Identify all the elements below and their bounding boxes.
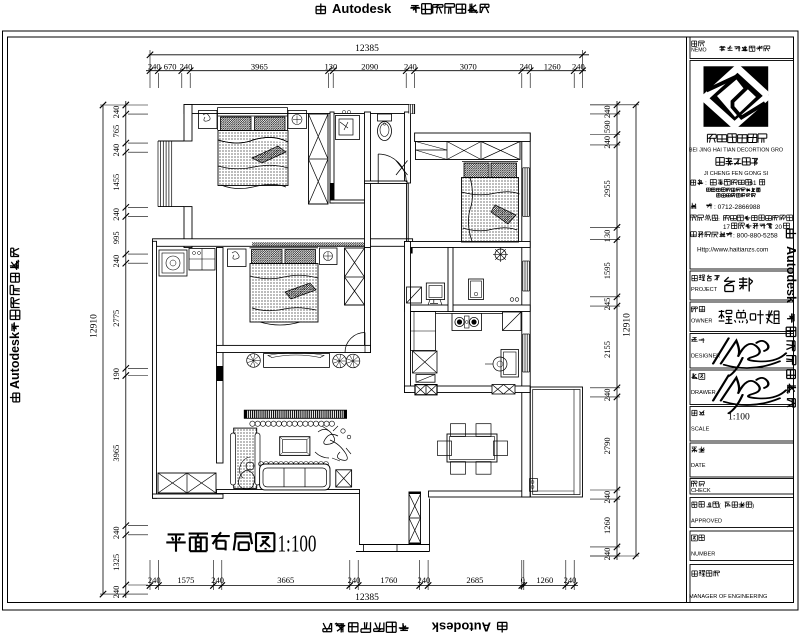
svg-text:OWNER: OWNER <box>691 319 712 325</box>
svg-text:NEMO: NEMO <box>691 48 707 54</box>
svg-text:Http://www.haitianzs.com: Http://www.haitianzs.com <box>697 247 768 254</box>
svg-text:3965: 3965 <box>111 445 121 462</box>
svg-text:(: ( <box>719 503 721 510</box>
svg-text:240: 240 <box>111 106 121 119</box>
svg-text:3965: 3965 <box>251 61 268 71</box>
svg-text:JI CHENG FEN GONG SI: JI CHENG FEN GONG SI <box>704 171 769 177</box>
svg-text:130: 130 <box>602 230 612 243</box>
svg-text:NUMBER: NUMBER <box>691 552 715 558</box>
svg-text:2790: 2790 <box>602 437 612 454</box>
svg-text:1455: 1455 <box>111 174 121 191</box>
svg-text:12385: 12385 <box>355 44 379 54</box>
svg-text:240: 240 <box>602 491 612 504</box>
svg-text:240: 240 <box>111 208 121 221</box>
svg-text:: 800-880-5258: : 800-880-5258 <box>733 233 778 240</box>
svg-text:MANAGER OF ENGINEERING: MANAGER OF ENGINEERING <box>689 594 767 600</box>
svg-text:995: 995 <box>111 231 121 244</box>
svg-text:240: 240 <box>602 105 612 118</box>
svg-text:Autodesk: Autodesk <box>431 620 491 635</box>
svg-text:1325: 1325 <box>111 554 121 571</box>
svg-text:): ) <box>752 503 754 510</box>
svg-text:: 0712-2866988: : 0712-2866988 <box>714 204 761 211</box>
svg-text:DRAWER: DRAWER <box>691 390 716 396</box>
svg-text:240: 240 <box>602 548 612 561</box>
svg-text:130: 130 <box>325 61 338 71</box>
svg-text:DATE: DATE <box>691 463 706 469</box>
svg-text:12910: 12910 <box>90 314 100 338</box>
svg-text:Autodesk: Autodesk <box>8 332 22 389</box>
svg-text:SCALE: SCALE <box>691 427 710 433</box>
svg-text:240: 240 <box>180 61 193 71</box>
svg-text:61: 61 <box>750 180 757 187</box>
svg-text:20: 20 <box>775 224 782 231</box>
svg-text:12910: 12910 <box>623 313 633 337</box>
svg-text:240: 240 <box>111 526 121 539</box>
svg-text:2090: 2090 <box>361 61 378 71</box>
svg-text:1260: 1260 <box>536 575 553 585</box>
svg-text:2775: 2775 <box>111 310 121 327</box>
svg-text:240: 240 <box>111 586 121 599</box>
svg-text:240: 240 <box>602 389 612 402</box>
svg-text:240: 240 <box>520 61 533 71</box>
svg-text:2955: 2955 <box>602 180 612 197</box>
svg-text:190: 190 <box>111 368 121 381</box>
svg-text:590: 590 <box>602 120 612 133</box>
svg-text:240: 240 <box>111 144 121 157</box>
svg-text:765: 765 <box>111 125 121 138</box>
svg-text:240: 240 <box>404 61 417 71</box>
svg-text:1575: 1575 <box>177 575 194 585</box>
svg-text:1260: 1260 <box>602 517 612 534</box>
svg-text:1595: 1595 <box>602 262 612 279</box>
svg-text:2685: 2685 <box>466 575 483 585</box>
svg-text:670: 670 <box>164 61 177 71</box>
svg-text:3665: 3665 <box>277 575 294 585</box>
svg-text:1760: 1760 <box>380 575 397 585</box>
svg-text:BEI JING HAI TIAN DECORTION GR: BEI JING HAI TIAN DECORTION GRO <box>689 148 783 154</box>
svg-text:PROJECT: PROJECT <box>691 287 718 293</box>
svg-text:3070: 3070 <box>460 61 477 71</box>
svg-text:0: 0 <box>521 575 525 585</box>
svg-text:12385: 12385 <box>355 593 379 603</box>
svg-text:2155: 2155 <box>602 341 612 358</box>
svg-text:1260: 1260 <box>544 61 561 71</box>
svg-text:CHECK: CHECK <box>691 488 711 494</box>
svg-text:APPROVED: APPROVED <box>691 519 722 525</box>
svg-text:240: 240 <box>602 136 612 149</box>
svg-text:240: 240 <box>111 255 121 268</box>
svg-text:Autodesk: Autodesk <box>784 246 798 303</box>
svg-text:1:100: 1:100 <box>278 532 317 558</box>
svg-text:1:100: 1:100 <box>728 413 750 423</box>
svg-text:245: 245 <box>602 298 612 311</box>
svg-text:Autodesk: Autodesk <box>332 1 392 16</box>
svg-text:17: 17 <box>723 224 730 231</box>
